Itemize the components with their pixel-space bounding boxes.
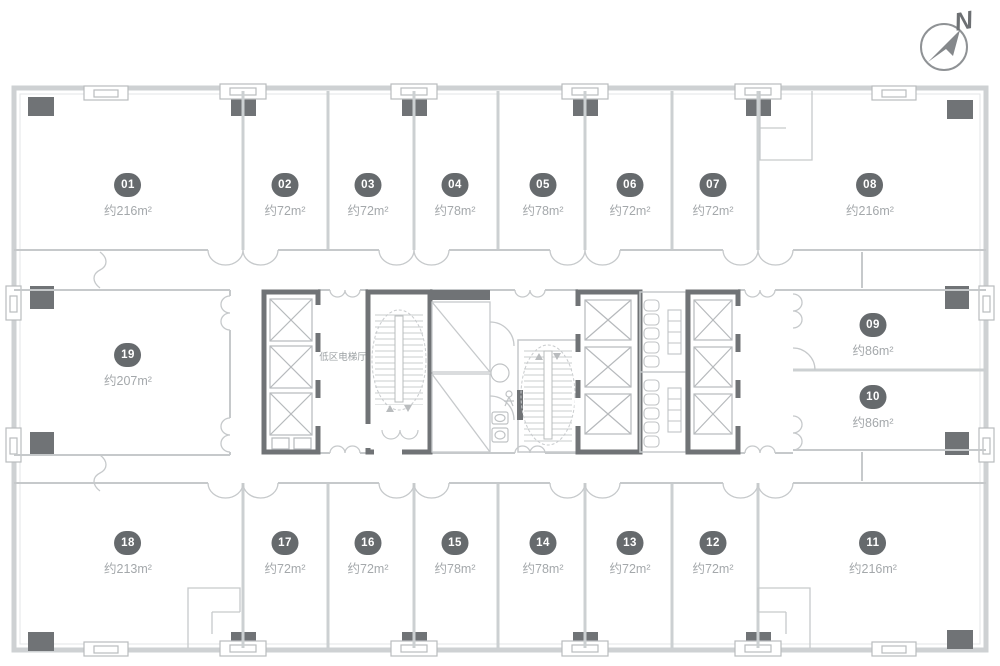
unit-number-badge: 01 <box>115 173 142 197</box>
unit-area-label: 约216m² <box>849 558 897 577</box>
unit-area-label: 约72m² <box>265 558 306 577</box>
unit-area-label: 约72m² <box>693 558 734 577</box>
shaft-rooms <box>432 302 490 452</box>
unit-number-badge: 17 <box>271 531 298 555</box>
unit-number-badge: 09 <box>859 313 886 337</box>
unit-number-badge: 06 <box>616 173 643 197</box>
unit-number-badge: 11 <box>860 531 887 555</box>
unit-number-badge: 03 <box>354 173 381 197</box>
unit-marker-09: 09 约86m² <box>853 313 894 359</box>
right-elevator-bank-b <box>688 292 738 452</box>
unit-marker-06: 06 约72m² <box>610 173 651 219</box>
unit-area-label: 约78m² <box>523 200 564 219</box>
unit-area-label: 约72m² <box>265 200 306 219</box>
unit-number-badge: 14 <box>529 531 556 555</box>
unit-area-label: 约72m² <box>348 200 389 219</box>
unit-number-badge: 04 <box>441 173 468 197</box>
unit-marker-05: 05 约78m² <box>523 173 564 219</box>
unit-marker-08: 08 约216m² <box>846 173 894 219</box>
unit-marker-16: 16 约72m² <box>348 531 389 577</box>
unit-area-label: 约78m² <box>435 558 476 577</box>
unit-area-label: 约72m² <box>610 200 651 219</box>
unit-marker-11: 11 约216m² <box>849 531 897 577</box>
unit-marker-18: 18 约213m² <box>104 531 152 577</box>
unit-area-label: 约213m² <box>104 558 152 577</box>
unit-marker-13: 13 约72m² <box>610 531 651 577</box>
unit-number-badge: 05 <box>529 173 556 197</box>
unit-number-badge: 07 <box>699 173 726 197</box>
unit-marker-15: 15 约78m² <box>435 531 476 577</box>
unit-marker-03: 03 约72m² <box>348 173 389 219</box>
unit-number-badge: 16 <box>354 531 381 555</box>
stair-core-2 <box>517 340 578 452</box>
unit-area-label: 约216m² <box>104 200 152 219</box>
unit-number-badge: 08 <box>857 173 884 197</box>
unit-marker-19: 19 约207m² <box>104 343 152 389</box>
unit-area-label: 约78m² <box>435 200 476 219</box>
unit-marker-10: 10 约86m² <box>853 385 894 431</box>
compass-north-label: N <box>952 6 976 37</box>
unit-area-label: 约86m² <box>853 412 894 431</box>
corridor-walls <box>14 250 986 483</box>
unit-marker-01: 01 约216m² <box>104 173 152 219</box>
unit-marker-17: 17 约72m² <box>265 531 306 577</box>
unit-number-badge: 12 <box>699 531 726 555</box>
unit-area-label: 约86m² <box>853 340 894 359</box>
unit-marker-02: 02 约72m² <box>265 173 306 219</box>
structural-columns <box>28 97 973 651</box>
unit-marker-12: 12 约72m² <box>693 531 734 577</box>
unit-number-badge: 02 <box>271 173 298 197</box>
elevator-hall-label: 低区电梯厅 <box>319 351 367 363</box>
unit-number-badge: 18 <box>115 531 142 555</box>
unit-number-badge: 13 <box>616 531 643 555</box>
unit-marker-14: 14 约78m² <box>523 531 564 577</box>
unit-number-badge: 19 <box>115 343 142 367</box>
central-lobby-fixtures <box>491 364 514 442</box>
unit-area-label: 约207m² <box>104 370 152 389</box>
left-elevator-bank <box>264 292 318 452</box>
unit-area-label: 约72m² <box>348 558 389 577</box>
washrooms <box>640 292 686 452</box>
unit-marker-07: 07 约72m² <box>693 173 734 219</box>
unit-area-label: 约216m² <box>846 200 894 219</box>
unit-area-label: 约72m² <box>693 200 734 219</box>
north-compass: N <box>921 6 976 70</box>
unit-marker-04: 04 约78m² <box>435 173 476 219</box>
unit-area-label: 约72m² <box>610 558 651 577</box>
unit-area-label: 约78m² <box>523 558 564 577</box>
right-elevator-bank-a <box>578 292 640 452</box>
unit-number-badge: 10 <box>859 385 886 409</box>
unit-number-badge: 15 <box>441 531 468 555</box>
floor-plan-page: 低区电梯厅 <box>0 0 1000 666</box>
